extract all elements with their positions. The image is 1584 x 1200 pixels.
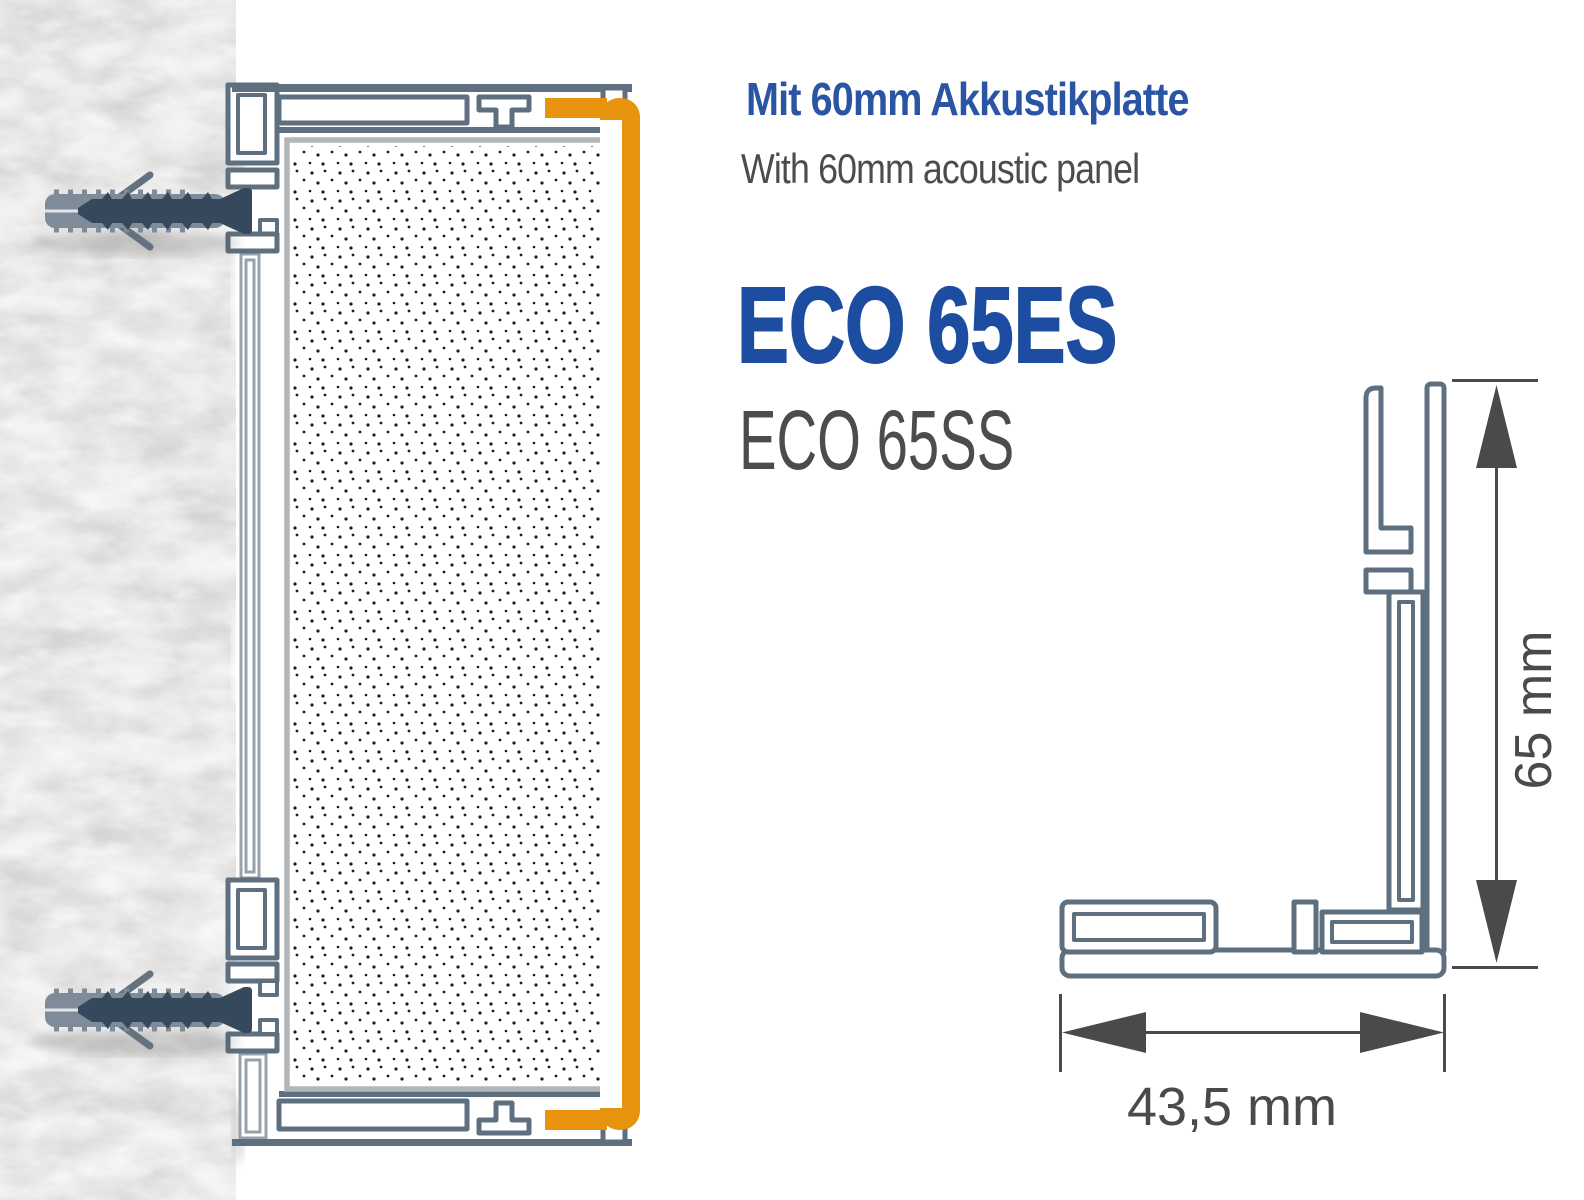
wall-mount-section-diagram (0, 0, 660, 1200)
acoustic-panel-perforation (293, 146, 613, 1083)
width-dimension-label: 43,5 mm (1127, 1077, 1337, 1137)
width-dimension-arrow (1059, 994, 1446, 1072)
profile-cross-section-diagram: 65 mm 43,5 mm (1040, 0, 1584, 1200)
page-background: Mit 60mm Akkustikplatte With 60mm acoust… (0, 0, 1584, 1200)
height-dimension-label: 65 mm (1505, 631, 1563, 790)
profile-cross-section (1062, 384, 1444, 976)
product-name-secondary: ECO 65SS (739, 398, 1014, 482)
acoustic-panel (287, 140, 619, 1089)
